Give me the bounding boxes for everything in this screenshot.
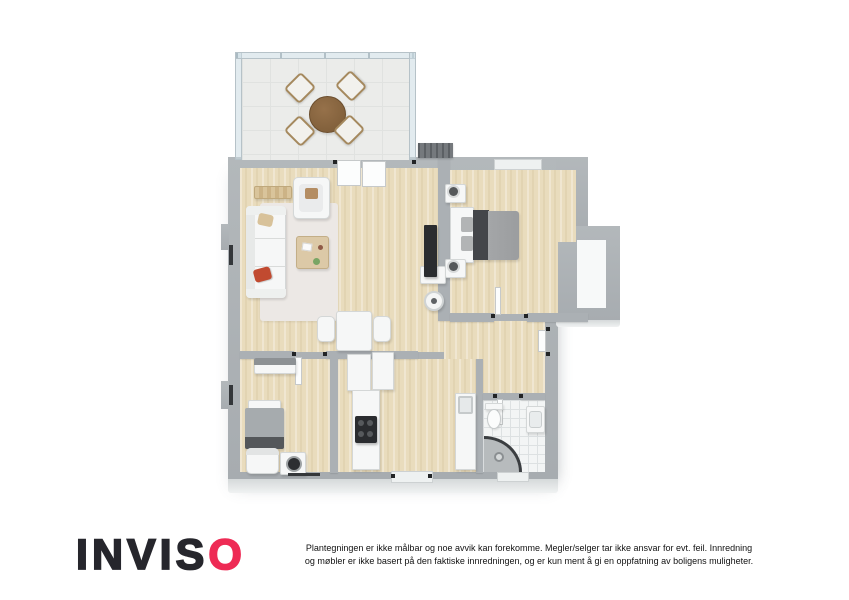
disclaimer-text: Plantegningen er ikke målbar og noe avvi… — [293, 542, 765, 567]
hinge-dot-entry-right-b — [546, 352, 550, 356]
hinge-dot-entry-right-a — [546, 327, 550, 331]
kitchen-tall-cabinet-b — [372, 352, 394, 390]
kitchen-tall-cabinet-a — [347, 354, 371, 391]
hinge-dot-balcony-door-b — [412, 160, 416, 164]
window-marker-left-upper — [229, 245, 233, 265]
headboard-cushion-b — [461, 236, 473, 251]
cooktop-burner-1 — [358, 420, 364, 426]
roof-vent-unit — [418, 143, 453, 158]
window-marker-bottom-left — [288, 473, 320, 476]
kitchen-sink — [458, 396, 473, 414]
balcony-glass-railing-right — [409, 52, 416, 160]
sofa-cushion-divider-a — [255, 238, 285, 239]
balcony-sliding-door-panel-a — [337, 160, 361, 186]
hinge-dot-bath-door-a — [493, 394, 497, 398]
second-bedroom-door-leaf — [295, 357, 302, 385]
coffee-table-decor — [318, 245, 323, 250]
wall-kitchen-bathroom — [476, 359, 483, 473]
bathroom-window-recess — [497, 472, 529, 482]
entry-door-leaf — [538, 330, 546, 352]
window-marker-left-lower — [229, 385, 233, 405]
hinge-dot-bedroom-door-b — [524, 314, 528, 318]
coffee-table-book — [301, 242, 312, 251]
armchair-pillow — [305, 188, 318, 199]
logo-accent-letter: O — [208, 531, 245, 579]
sofa-cushion-divider-b — [255, 266, 285, 267]
main-bedroom-window-recess — [494, 159, 542, 170]
tv — [424, 225, 437, 277]
hinge-dot-balcony-door-a — [333, 160, 337, 164]
page: INVISO Plantegningen er ikke målbar og n… — [0, 0, 849, 600]
disclaimer-line-1: Plantegningen er ikke målbar og noe avvi… — [293, 542, 765, 555]
hinge-dot-bath-door-b — [519, 394, 523, 398]
headboard-cushion-a — [461, 217, 473, 232]
cooktop-burner-4 — [367, 431, 373, 437]
toilet-bowl — [487, 409, 501, 429]
side-cylinder-table-center — [431, 298, 437, 304]
hinge-dot-entry-a — [391, 474, 395, 478]
entry-door-recess — [391, 471, 433, 483]
single-bed-duvet — [245, 408, 284, 438]
coffee-table — [296, 236, 329, 269]
hinge-dot-bedroom2-door-b — [323, 352, 327, 356]
wall-pilaster-left-upper — [221, 224, 229, 250]
small-dining-table — [336, 311, 372, 351]
wall-bathroom-top-right — [521, 393, 545, 400]
balcony-sliding-door-panel-b — [362, 161, 386, 187]
nightstand-lamp-top — [449, 187, 458, 196]
nightstand-lamp-bottom — [449, 262, 458, 271]
cooktop-burner-2 — [367, 420, 373, 426]
disclaimer-line-2: og møbler er ikke basert på den faktiske… — [293, 555, 765, 568]
bathroom-sink-bowl — [529, 411, 542, 428]
floor-plan-render — [0, 0, 849, 600]
hinge-dot-bedroom2-door-a — [292, 352, 296, 356]
hinge-dot-bedroom-door-a — [491, 314, 495, 318]
wall-bedroom2-kitchen — [330, 357, 338, 473]
coffee-table-plant — [313, 258, 320, 265]
balcony-glass-railing-top — [235, 52, 416, 59]
dresser-top-dark — [254, 358, 296, 365]
cooktop-burner-3 — [358, 431, 364, 437]
double-bed-duvet — [488, 211, 519, 260]
small-dining-chair-left — [317, 316, 335, 342]
double-bed-dark-throw — [473, 210, 489, 260]
hinge-dot-entry-b — [428, 474, 432, 478]
balcony-glass-railing-left — [235, 52, 242, 160]
bedroom2-chair-back — [246, 448, 279, 455]
bay-niche-floor — [577, 240, 606, 308]
small-dining-chair-right — [373, 316, 391, 342]
bed-headboard-console — [450, 207, 474, 263]
inviso-logo: INVISO — [76, 531, 246, 580]
sideboard — [254, 186, 292, 199]
sofa-backrest — [246, 206, 255, 298]
wall-bedroom-bottom-left — [450, 313, 494, 322]
shower-head — [494, 452, 504, 462]
sofa-armrest-bottom — [246, 289, 286, 298]
wall-bedroom-bottom-right — [527, 313, 588, 322]
washing-machine-door — [288, 458, 300, 470]
wall-pilaster-left-lower — [221, 381, 229, 409]
main-bedroom-door-leaf — [495, 287, 501, 315]
logo-text-prefix: INVIS — [76, 531, 208, 579]
